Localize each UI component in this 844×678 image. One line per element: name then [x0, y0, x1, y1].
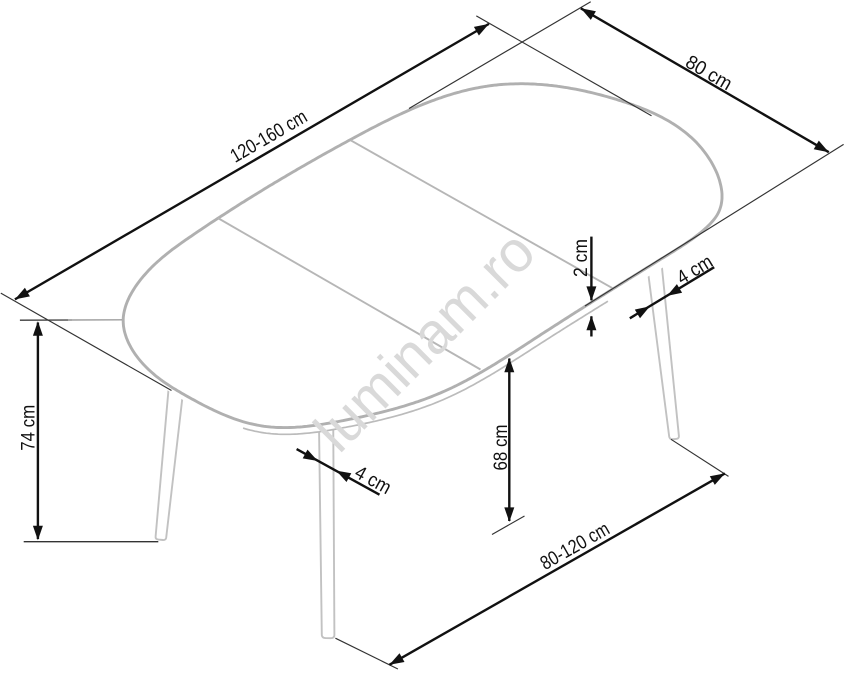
- svg-text:68 cm: 68 cm: [490, 425, 512, 471]
- svg-text:2 cm: 2 cm: [570, 239, 592, 277]
- svg-text:74 cm: 74 cm: [18, 405, 40, 451]
